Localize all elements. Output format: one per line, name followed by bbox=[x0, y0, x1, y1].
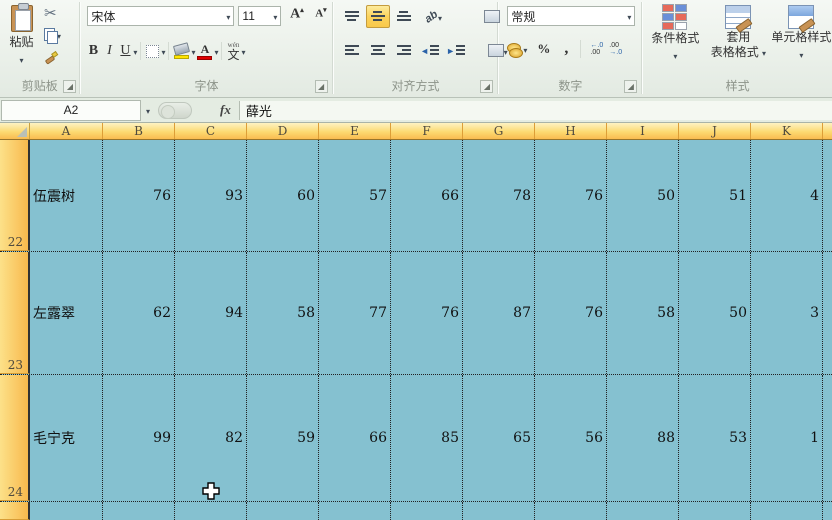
column-header-partial[interactable] bbox=[823, 123, 832, 139]
comma-style-button[interactable]: , bbox=[558, 38, 574, 60]
cell-j24[interactable]: 53 bbox=[679, 375, 751, 501]
cell-b24[interactable]: 99 bbox=[103, 375, 175, 501]
cell-d22[interactable]: 60 bbox=[247, 140, 319, 251]
format-painter-button[interactable] bbox=[42, 46, 78, 68]
copy-button[interactable] bbox=[42, 24, 78, 46]
font-size-select[interactable]: 11 bbox=[238, 6, 281, 26]
cell-i23[interactable]: 58 bbox=[607, 252, 679, 374]
cell-g24[interactable]: 65 bbox=[463, 375, 535, 501]
scissors-icon: ✂ bbox=[44, 4, 57, 22]
increase-font-size-button[interactable]: A▴ bbox=[285, 6, 308, 27]
ribbon-group-styles: 条件格式 套用 表格格式 单元格样式 样式 bbox=[643, 0, 832, 97]
column-header-j[interactable]: J bbox=[679, 123, 751, 139]
format-as-table-button[interactable]: 套用 表格格式 bbox=[707, 2, 769, 76]
font-name-select[interactable]: 宋体 bbox=[87, 6, 234, 26]
font-size-dropdown-arrow-icon bbox=[273, 9, 277, 23]
cell-f25[interactable] bbox=[391, 502, 463, 520]
cell-f22[interactable]: 66 bbox=[391, 140, 463, 251]
cut-button[interactable]: ✂ bbox=[42, 2, 78, 24]
format-painter-icon bbox=[44, 50, 59, 65]
table-row: 23 左露翠 62 94 58 77 76 87 76 58 50 3 bbox=[0, 252, 832, 375]
column-header-g[interactable]: G bbox=[463, 123, 535, 139]
currency-coins-icon bbox=[507, 43, 521, 55]
cell-e22[interactable]: 57 bbox=[319, 140, 391, 251]
column-header-b[interactable]: B bbox=[103, 123, 175, 139]
font-dialog-launcher[interactable]: ◢ bbox=[315, 80, 328, 93]
cell-j25[interactable] bbox=[679, 502, 751, 520]
conditional-formatting-icon bbox=[662, 4, 688, 30]
borders-button[interactable] bbox=[144, 40, 161, 62]
cell-j22[interactable]: 51 bbox=[679, 140, 751, 251]
formula-input[interactable]: 薛光 bbox=[240, 101, 832, 120]
orientation-button[interactable]: ab bbox=[418, 5, 450, 28]
column-header-d[interactable]: D bbox=[247, 123, 319, 139]
bottom-align-button[interactable] bbox=[392, 5, 416, 28]
cell-k24[interactable]: 1 bbox=[751, 375, 823, 501]
format-as-table-dropdown-arrow-icon bbox=[762, 45, 766, 59]
cell-d25[interactable] bbox=[247, 502, 319, 520]
cell-f24[interactable]: 85 bbox=[391, 375, 463, 501]
top-align-button[interactable] bbox=[340, 5, 364, 28]
row-header-22[interactable]: 22 bbox=[0, 140, 30, 251]
column-header-k[interactable]: K bbox=[751, 123, 823, 139]
cell-b22[interactable]: 76 bbox=[103, 140, 175, 251]
cell-c22[interactable]: 93 bbox=[175, 140, 247, 251]
excel-window: 粘贴 ✂ 剪贴板 ◢ bbox=[0, 0, 832, 520]
spreadsheet-grid: A B C D E F G H I J K 22 伍震树 76 93 60 57… bbox=[0, 123, 832, 520]
column-header-a[interactable]: A bbox=[30, 123, 103, 139]
accounting-format-button[interactable] bbox=[505, 38, 523, 60]
cell-styles-dropdown-arrow-icon bbox=[799, 45, 803, 62]
ribbon-group-clipboard: 粘贴 ✂ 剪贴板 ◢ bbox=[0, 0, 79, 97]
cell-j23[interactable]: 50 bbox=[679, 252, 751, 374]
cell-b23[interactable]: 62 bbox=[103, 252, 175, 374]
alignment-group-label: 对齐方式 bbox=[334, 77, 498, 94]
number-format-select[interactable]: 常规 bbox=[507, 6, 635, 26]
cell-i22[interactable]: 50 bbox=[607, 140, 679, 251]
middle-align-button[interactable] bbox=[366, 5, 390, 28]
paste-button[interactable]: 粘贴 bbox=[3, 2, 40, 76]
font-color-letter: A bbox=[201, 43, 210, 55]
cell-styles-button[interactable]: 单元格样式 bbox=[771, 2, 831, 76]
font-color-dropdown-arrow-icon[interactable] bbox=[214, 42, 218, 60]
bold-button[interactable]: B bbox=[85, 40, 101, 62]
paste-label: 粘贴 bbox=[4, 33, 39, 50]
phonetic-guide-button[interactable]: wén 文 bbox=[225, 40, 241, 62]
accounting-dropdown-arrow-icon[interactable] bbox=[523, 40, 527, 58]
cell-i25[interactable] bbox=[607, 502, 679, 520]
conditional-formatting-button[interactable]: 条件格式 bbox=[645, 2, 705, 76]
cell-c23[interactable]: 94 bbox=[175, 252, 247, 374]
cell-h24[interactable]: 56 bbox=[535, 375, 607, 501]
wrap-text-icon bbox=[484, 10, 500, 23]
styles-group-label: 样式 bbox=[643, 77, 832, 94]
align-center-button[interactable] bbox=[366, 39, 390, 62]
cell-e24[interactable]: 66 bbox=[319, 375, 391, 501]
cell-i24[interactable]: 88 bbox=[607, 375, 679, 501]
decrease-font-size-button[interactable]: A▾ bbox=[309, 6, 332, 27]
cell-a23[interactable]: 左露翠 bbox=[30, 252, 103, 374]
font-color-bar-icon bbox=[197, 56, 212, 60]
copy-icon bbox=[44, 28, 57, 43]
corner-triangle-icon bbox=[17, 127, 27, 137]
borders-icon bbox=[146, 45, 159, 58]
column-header-e[interactable]: E bbox=[319, 123, 391, 139]
italic-button[interactable]: I bbox=[101, 40, 117, 62]
cell-e25[interactable] bbox=[319, 502, 391, 520]
row-header-24[interactable]: 24 bbox=[0, 375, 30, 501]
ribbon-group-number: 常规 % , ←.0 .00 .0 bbox=[499, 0, 641, 97]
cell-f23[interactable]: 76 bbox=[391, 252, 463, 374]
cell-d24[interactable]: 59 bbox=[247, 375, 319, 501]
cell-g22[interactable]: 78 bbox=[463, 140, 535, 251]
font-color-button[interactable]: A bbox=[195, 40, 214, 62]
table-row: 22 伍震树 76 93 60 57 66 78 76 50 51 4 bbox=[0, 140, 832, 252]
cell-g23[interactable]: 87 bbox=[463, 252, 535, 374]
align-left-button[interactable] bbox=[340, 39, 364, 62]
cell-partial[interactable] bbox=[823, 502, 832, 520]
ribbon-group-font: 宋体 11 A▴ A▾ B I U bbox=[81, 0, 331, 97]
font-group-label: 字体 bbox=[81, 77, 331, 94]
column-header-i[interactable]: I bbox=[607, 123, 679, 139]
align-right-button[interactable] bbox=[392, 39, 416, 62]
paste-clipboard-icon bbox=[11, 5, 33, 32]
cell-k23[interactable]: 3 bbox=[751, 252, 823, 374]
font-name-dropdown-arrow-icon bbox=[226, 9, 230, 23]
column-headers: A B C D E F G H I J K bbox=[0, 123, 832, 140]
cell-c24[interactable]: 82 bbox=[175, 375, 247, 501]
insert-function-button[interactable]: fx bbox=[220, 102, 231, 118]
phonetic-dropdown-arrow-icon[interactable] bbox=[242, 42, 246, 60]
borders-dropdown-arrow-icon[interactable] bbox=[161, 42, 165, 60]
number-format-dropdown-arrow-icon bbox=[627, 9, 631, 23]
row-header-23[interactable]: 23 bbox=[0, 252, 30, 374]
cell-a22[interactable]: 伍震树 bbox=[30, 140, 103, 251]
table-row: 24 毛宁克 99 82 59 66 85 65 56 88 53 1 bbox=[0, 375, 832, 502]
decrease-indent-icon: ◄ bbox=[420, 46, 429, 56]
percent-style-button[interactable]: % bbox=[535, 38, 552, 60]
cell-partial[interactable] bbox=[823, 252, 832, 374]
cell-h23[interactable]: 76 bbox=[535, 252, 607, 374]
column-header-c[interactable]: C bbox=[175, 123, 247, 139]
row-header-25[interactable] bbox=[0, 502, 30, 520]
clipboard-dialog-launcher[interactable]: ◢ bbox=[63, 80, 76, 93]
table-row bbox=[0, 502, 832, 520]
ribbon: 粘贴 ✂ 剪贴板 ◢ bbox=[0, 0, 832, 98]
cell-a25[interactable] bbox=[30, 502, 103, 520]
cell-c25[interactable] bbox=[175, 502, 247, 520]
decrease-indent-button[interactable]: ◄ bbox=[418, 39, 442, 62]
cell-partial[interactable] bbox=[823, 140, 832, 251]
number-group-label: 数字 bbox=[499, 77, 641, 94]
increase-decimal-button[interactable]: ←.0 .00 bbox=[587, 42, 606, 56]
ribbon-group-alignment: ab ◄ bbox=[334, 0, 498, 97]
select-all-corner[interactable] bbox=[0, 123, 30, 139]
cell-e23[interactable]: 77 bbox=[319, 252, 391, 374]
cell-h22[interactable]: 76 bbox=[535, 140, 607, 251]
column-header-f[interactable]: F bbox=[391, 123, 463, 139]
paste-dropdown-arrow-icon[interactable] bbox=[19, 50, 23, 67]
cell-b25[interactable] bbox=[103, 502, 175, 520]
conditional-formatting-dropdown-arrow-icon bbox=[673, 46, 677, 63]
underline-button[interactable]: U bbox=[117, 40, 133, 62]
name-box[interactable]: A2 bbox=[1, 100, 141, 121]
cell-h25[interactable] bbox=[535, 502, 607, 520]
name-box-dropdown-arrow-icon[interactable] bbox=[141, 101, 155, 119]
increase-indent-icon: ► bbox=[446, 46, 455, 56]
decrease-decimal-button[interactable]: .00 →.0 bbox=[606, 42, 625, 56]
column-header-h[interactable]: H bbox=[535, 123, 607, 139]
cell-g25[interactable] bbox=[463, 502, 535, 520]
number-dialog-launcher[interactable]: ◢ bbox=[624, 80, 637, 93]
cell-partial[interactable] bbox=[823, 375, 832, 501]
cell-d23[interactable]: 58 bbox=[247, 252, 319, 374]
underline-dropdown-arrow-icon[interactable] bbox=[133, 42, 137, 60]
alignment-dialog-launcher[interactable]: ◢ bbox=[480, 80, 493, 93]
cell-k25[interactable] bbox=[751, 502, 823, 520]
cell-k22[interactable]: 4 bbox=[751, 140, 823, 251]
fill-color-bucket-icon bbox=[173, 42, 190, 56]
format-as-table-icon bbox=[725, 5, 751, 29]
formula-bar: A2 fx 薛光 bbox=[0, 98, 832, 123]
cell-a24[interactable]: 毛宁克 bbox=[30, 375, 103, 501]
fill-color-button[interactable] bbox=[172, 40, 191, 62]
formula-buttons-disabled bbox=[158, 102, 192, 119]
increase-indent-button[interactable]: ► bbox=[444, 39, 468, 62]
cell-styles-icon bbox=[788, 5, 814, 29]
